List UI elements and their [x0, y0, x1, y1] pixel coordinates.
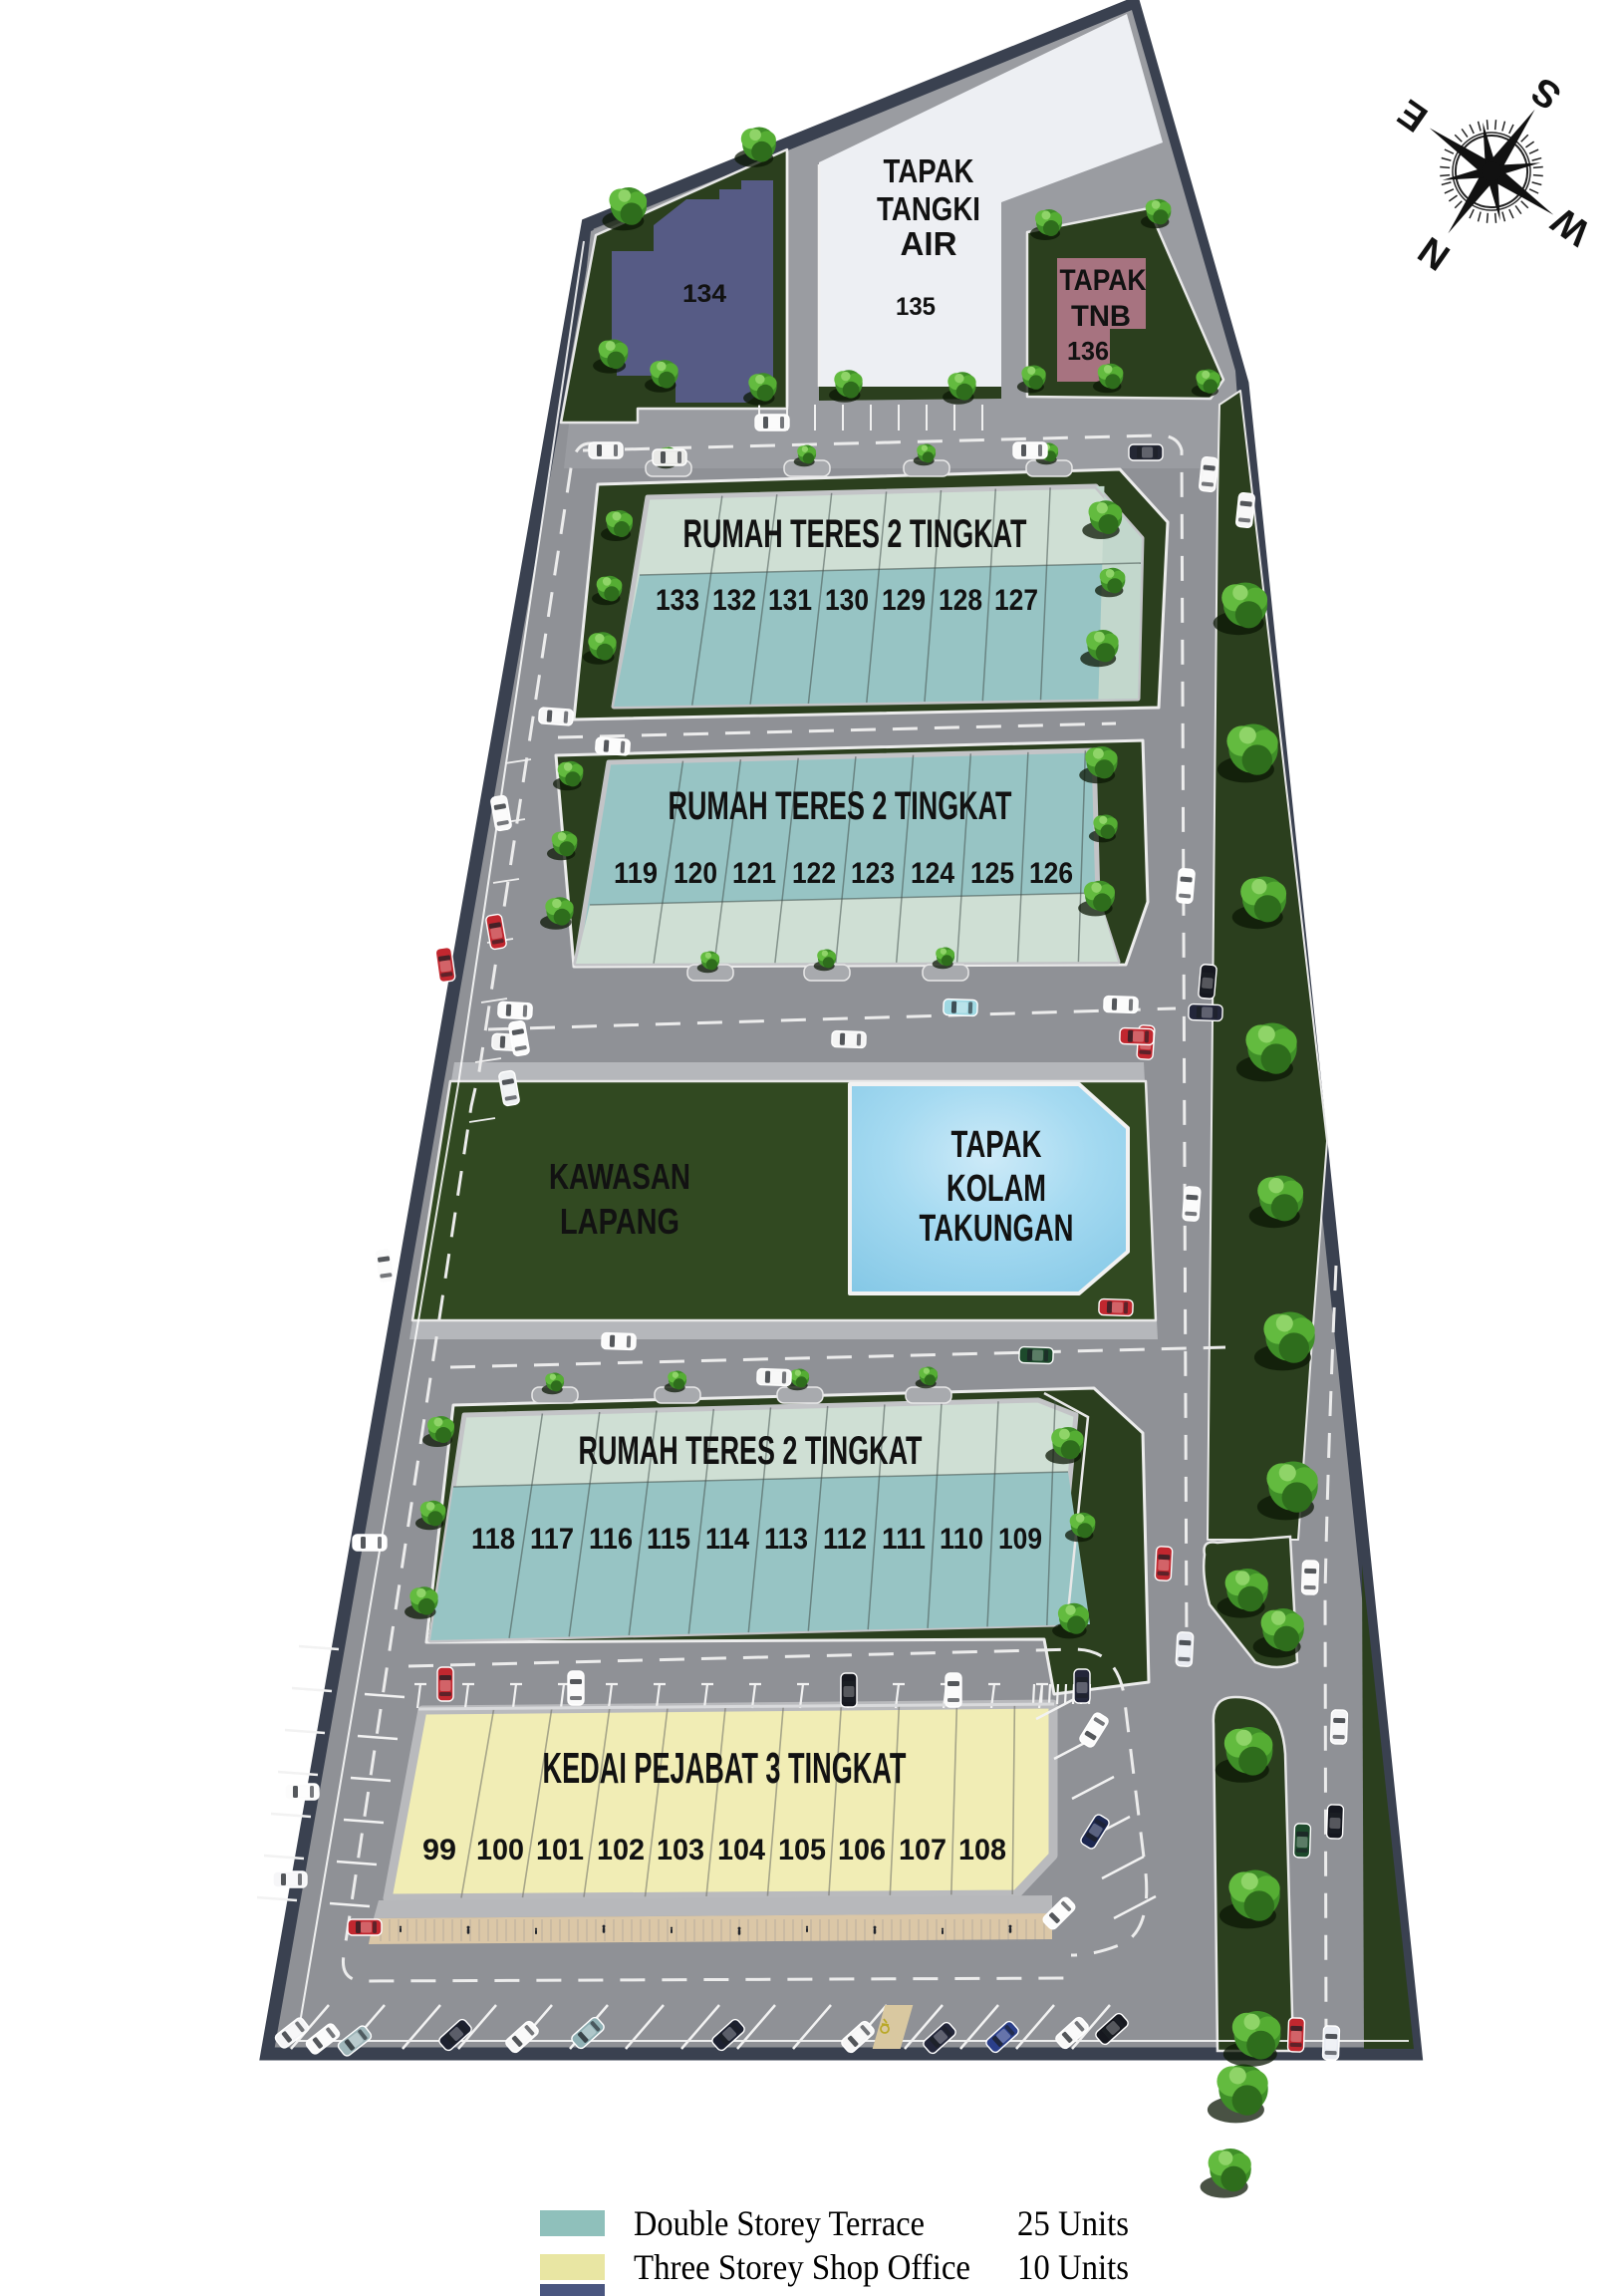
svg-text:123: 123	[851, 857, 895, 890]
svg-text:10 Units: 10 Units	[1017, 2247, 1129, 2287]
svg-text:RUMAH TERES 2 TINGKAT: RUMAH TERES 2 TINGKAT	[683, 512, 1027, 556]
svg-text:106: 106	[838, 1834, 886, 1866]
svg-text:102: 102	[597, 1834, 645, 1866]
svg-text:Double Storey Semi D: Double Storey Semi D	[634, 2292, 925, 2296]
svg-text:129: 129	[882, 584, 926, 617]
svg-text:108: 108	[958, 1834, 1006, 1866]
svg-text:101: 101	[536, 1834, 584, 1866]
svg-text:124: 124	[911, 857, 954, 890]
svg-text:99: 99	[422, 1834, 456, 1866]
svg-text:112: 112	[823, 1523, 867, 1556]
svg-text:100: 100	[476, 1834, 524, 1866]
svg-text:103: 103	[657, 1834, 704, 1866]
svg-text:121: 121	[732, 857, 776, 890]
svg-text:KOLAM: KOLAM	[947, 1168, 1046, 1210]
svg-text:105: 105	[778, 1834, 826, 1866]
svg-text:128: 128	[939, 584, 982, 617]
svg-text:S: S	[1524, 69, 1569, 118]
svg-text:127: 127	[994, 584, 1038, 617]
svg-text:KAWASAN: KAWASAN	[549, 1156, 690, 1197]
svg-text:N: N	[1411, 228, 1458, 278]
svg-text:126: 126	[1029, 857, 1073, 890]
svg-text:RUMAH TERES 2 TINGKAT: RUMAH TERES 2 TINGKAT	[579, 1429, 923, 1473]
svg-text:2 Units: 2 Units	[1017, 2292, 1117, 2296]
svg-text:LAPANG: LAPANG	[560, 1201, 679, 1242]
svg-text:134: 134	[682, 280, 726, 308]
svg-text:Double Storey Terrace: Double Storey Terrace	[634, 2203, 925, 2243]
svg-text:111: 111	[882, 1523, 926, 1556]
svg-text:TAPAK: TAPAK	[951, 1124, 1042, 1166]
svg-text:TNB: TNB	[1071, 300, 1131, 333]
svg-text:25 Units: 25 Units	[1017, 2203, 1129, 2243]
svg-text:116: 116	[589, 1523, 633, 1556]
svg-text:RUMAH TERES 2 TINGKAT: RUMAH TERES 2 TINGKAT	[669, 784, 1012, 828]
svg-text:125: 125	[970, 857, 1014, 890]
svg-text:122: 122	[792, 857, 836, 890]
svg-text:107: 107	[899, 1834, 947, 1866]
svg-text:115: 115	[647, 1523, 690, 1556]
svg-text:120: 120	[674, 857, 717, 890]
svg-text:118: 118	[471, 1523, 515, 1556]
svg-text:109: 109	[998, 1523, 1042, 1556]
svg-text:117: 117	[530, 1523, 574, 1556]
svg-text:TAKUNGAN: TAKUNGAN	[920, 1208, 1074, 1250]
svg-text:KEDAI PEJABAT 3 TINGKAT: KEDAI PEJABAT 3 TINGKAT	[543, 1744, 907, 1793]
svg-text:TAPAK: TAPAK	[884, 152, 974, 189]
svg-text:131: 131	[768, 584, 812, 617]
svg-text:132: 132	[712, 584, 756, 617]
svg-text:Three Storey Shop Office: Three Storey Shop Office	[634, 2247, 970, 2287]
svg-text:TAPAK: TAPAK	[1060, 264, 1147, 297]
svg-text:136: 136	[1067, 336, 1109, 366]
svg-text:133: 133	[656, 584, 699, 617]
svg-text:AIR: AIR	[901, 225, 957, 262]
svg-text:130: 130	[825, 584, 869, 617]
svg-text:113: 113	[764, 1523, 808, 1556]
svg-text:119: 119	[614, 857, 658, 890]
svg-text:114: 114	[705, 1523, 749, 1556]
svg-text:TANGKI: TANGKI	[877, 190, 980, 227]
svg-text:W: W	[1544, 198, 1598, 253]
svg-text:E: E	[1391, 91, 1436, 140]
svg-text:110: 110	[940, 1523, 983, 1556]
svg-text:104: 104	[717, 1834, 765, 1866]
svg-text:135: 135	[896, 293, 936, 321]
